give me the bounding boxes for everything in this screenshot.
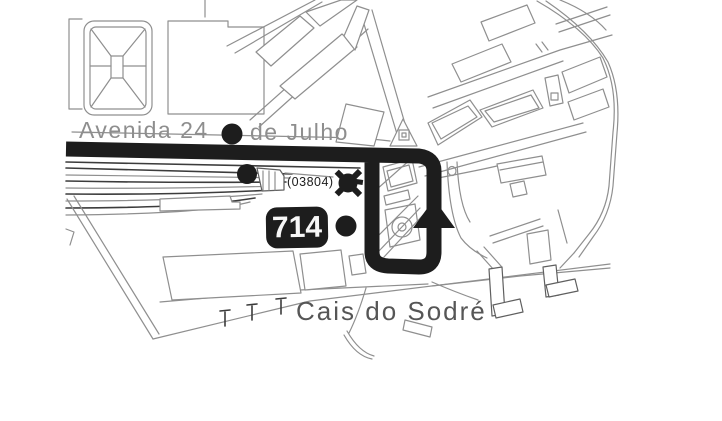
market-block bbox=[168, 0, 264, 114]
park-square bbox=[69, 19, 152, 115]
area-label-cais-do-sodre: Cais do Sodré bbox=[296, 296, 487, 327]
map-canvas: Avenida 24 de Julho (03804) 714 Cais do … bbox=[0, 0, 722, 421]
street-label-avenida-24: Avenida 24 bbox=[79, 117, 209, 144]
route-714-badge: 714 bbox=[266, 206, 329, 248]
map-graphics bbox=[0, 0, 722, 421]
direction-arrow-icon bbox=[413, 199, 455, 228]
ferry-terminal bbox=[438, 156, 551, 270]
bus-stop-dot bbox=[336, 216, 357, 237]
map-edge-bracket bbox=[69, 19, 82, 109]
station-building bbox=[376, 158, 424, 257]
bollards bbox=[220, 298, 286, 326]
small-marks bbox=[536, 42, 548, 52]
street-label-de-julho: de Julho bbox=[250, 119, 349, 146]
stop-code-label: (03804) bbox=[287, 175, 334, 189]
terminus-star-icon bbox=[335, 169, 364, 197]
bus-stop-dot bbox=[222, 124, 243, 145]
bus-stop-dot bbox=[237, 164, 257, 184]
